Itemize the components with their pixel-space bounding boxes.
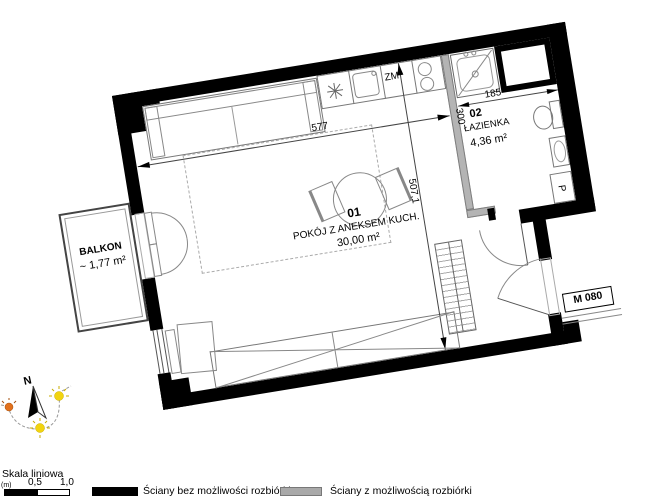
legend-swatch-demolishable-wall [280, 487, 322, 496]
apartment-plan: BALKON ~ 1,77 m² ZM [112, 18, 641, 431]
sun-path-tail [62, 386, 71, 391]
sun-south-icon [30, 418, 50, 438]
legend-label-solid-wall: Ściany bez możliwości rozbiórki [143, 485, 291, 497]
compass-north-label: N [22, 374, 32, 387]
scale-tick-end: 1,0 [60, 477, 74, 489]
floor-plan-page: BALKON ~ 1,77 m² ZM [0, 0, 671, 500]
legend-swatch-solid-wall [92, 487, 138, 496]
sun-east-icon [49, 386, 69, 401]
compass-sun-diagram: N [0, 355, 90, 445]
scale-tick-mid: 0,5 [28, 477, 42, 489]
scale-bar-filled [4, 489, 37, 496]
plan-linework [33, 18, 641, 444]
legend-label-demolishable-wall: Ściany z możliwością rozbiórki [330, 485, 472, 497]
scale-bar-empty [37, 489, 70, 496]
sun-west-icon [2, 398, 16, 411]
